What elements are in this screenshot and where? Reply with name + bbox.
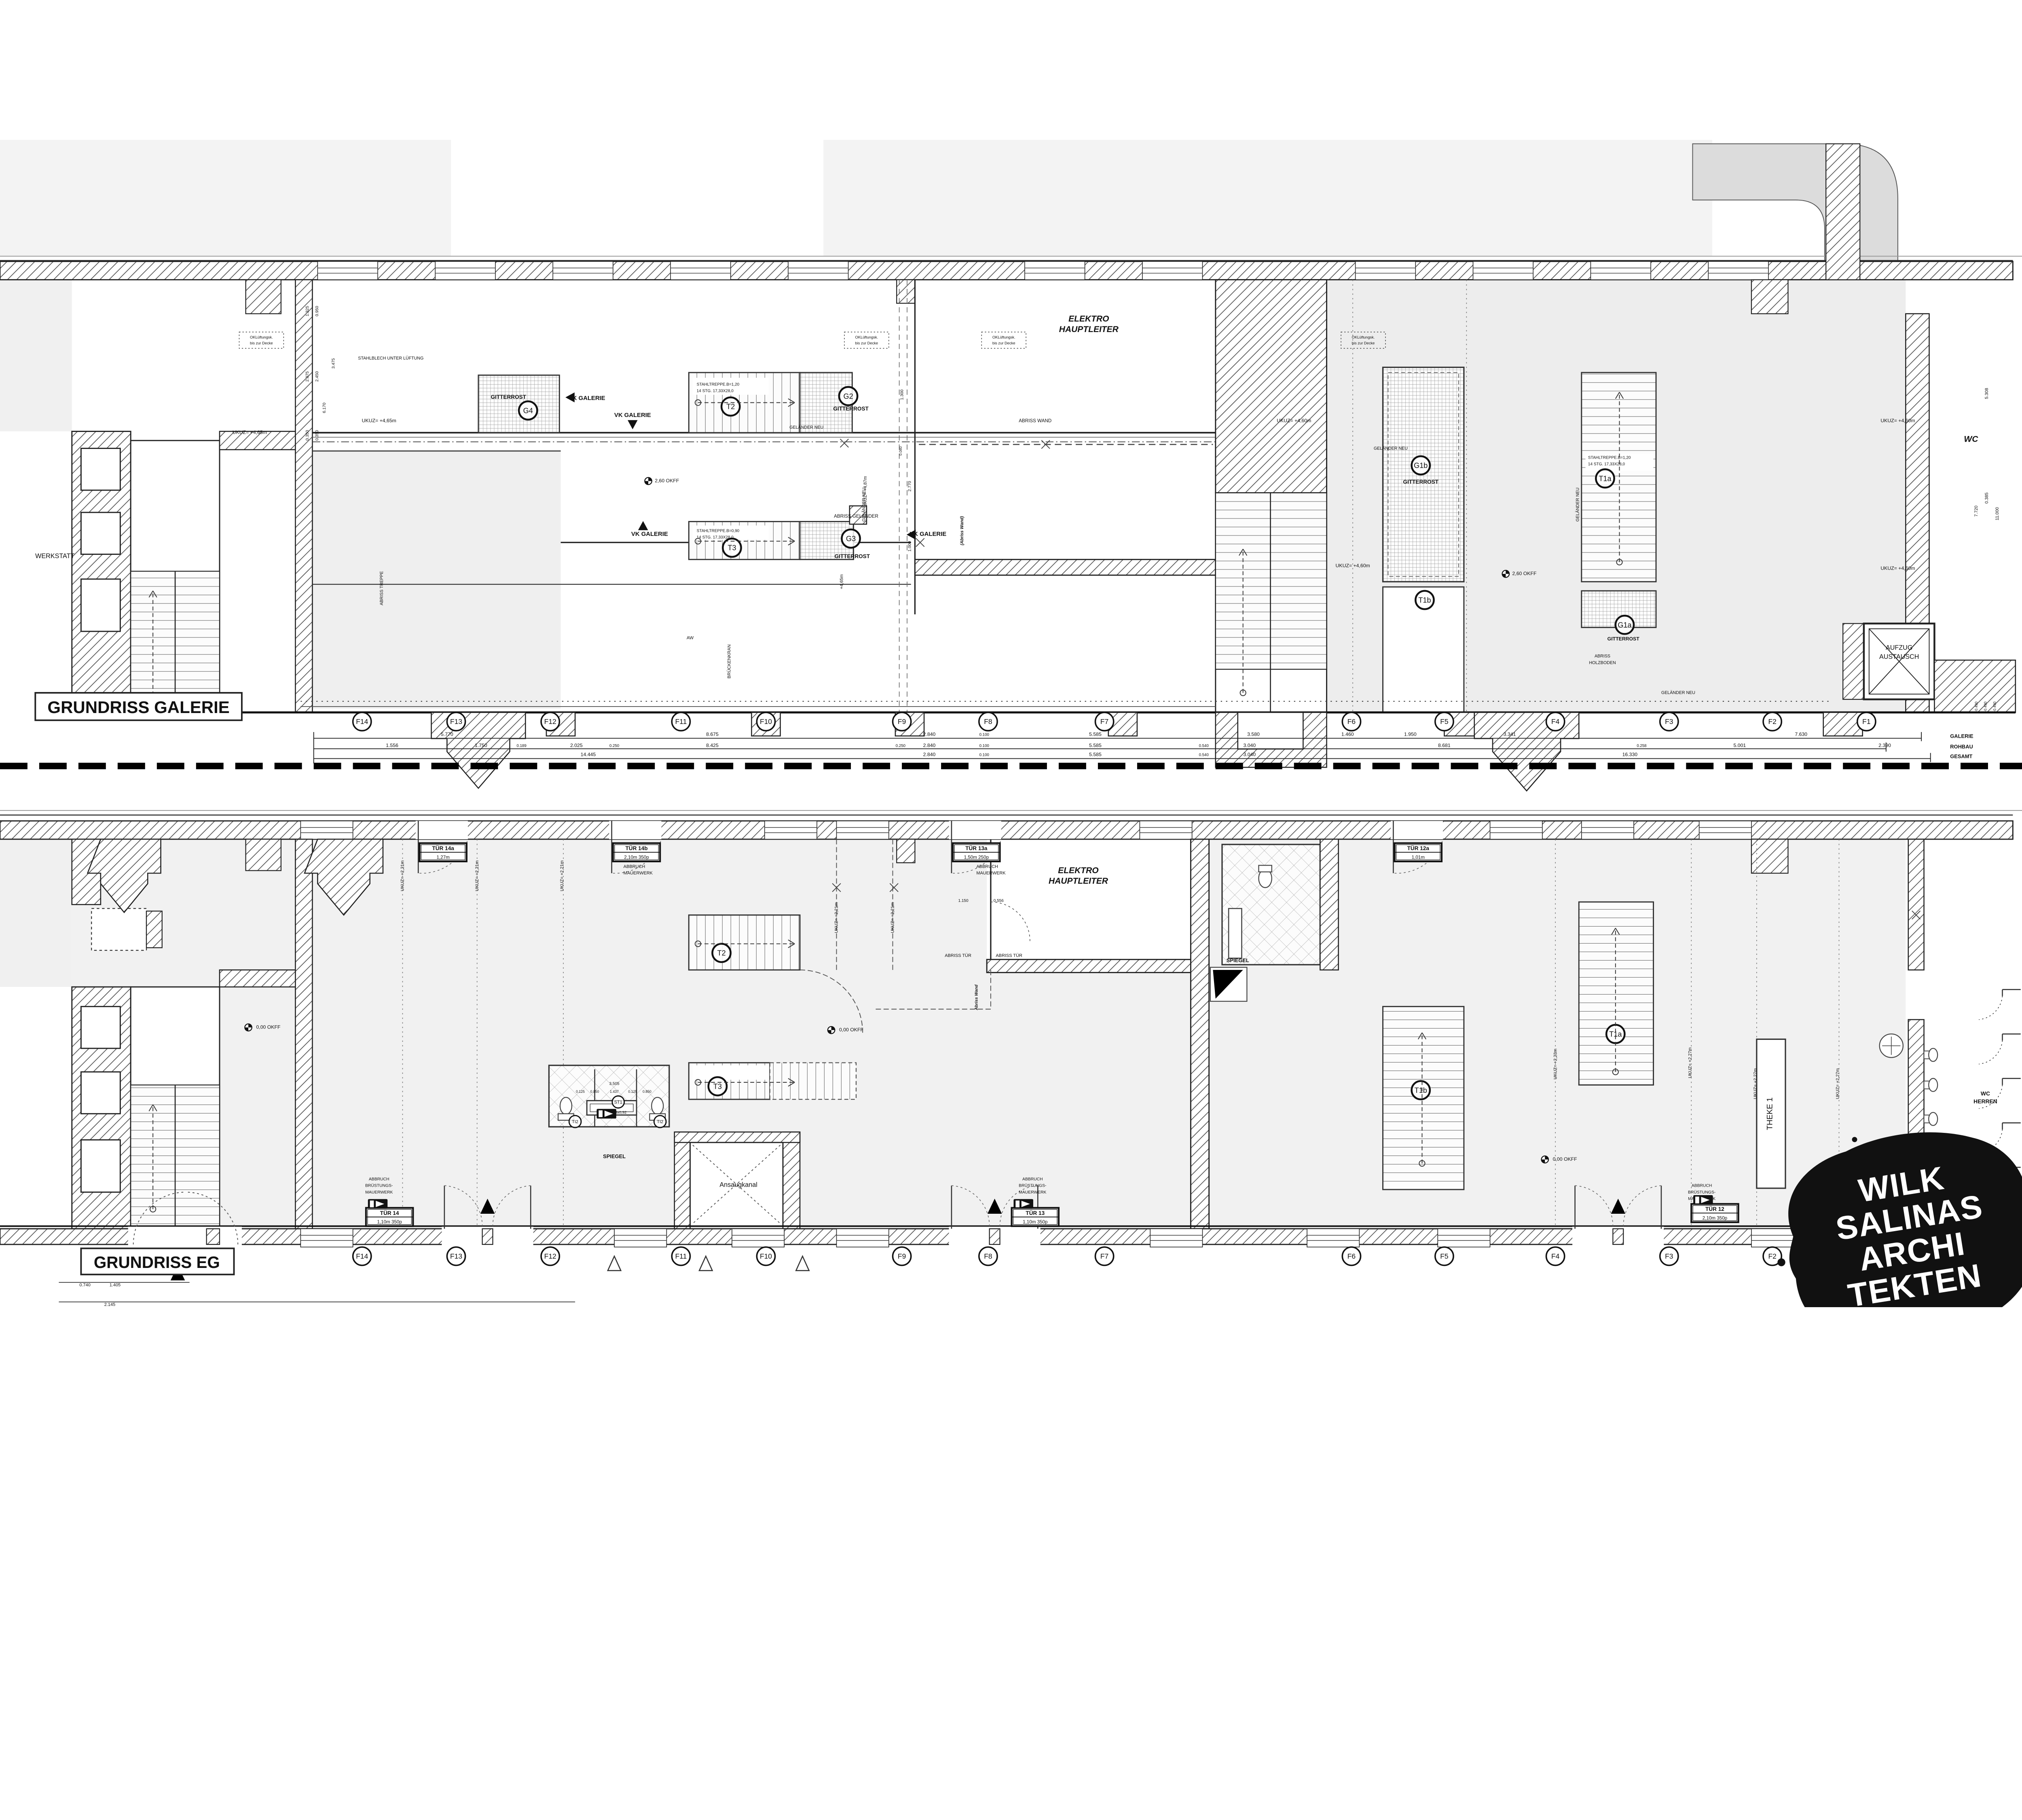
plan-label: MAUERWERK: [1019, 1190, 1046, 1195]
window-opening: [614, 1229, 666, 1247]
plan-label: GITTERROST: [491, 394, 527, 400]
plan-label: 1.000: [908, 541, 912, 552]
window-opening: [1356, 261, 1416, 279]
plan-label: 1.405: [110, 1282, 121, 1287]
plan-label: 0.540: [1199, 744, 1209, 748]
window-opening: [765, 821, 817, 839]
plan-label: HAUPTLEITER: [1049, 876, 1108, 886]
plan-label: STAHLTREPPE.B=1,20: [697, 382, 740, 387]
plan-label: 3.040: [1243, 743, 1256, 748]
level-marker: [828, 1026, 835, 1033]
plan-label: GELÄNDER NEU: [1374, 446, 1408, 451]
window-opening: [435, 261, 495, 279]
plan-label: STAHLTREPPE.B=0,90: [697, 529, 740, 533]
plan-label: GITTERROST: [1607, 636, 1640, 642]
plan-label: 14.445: [581, 752, 596, 758]
door-tag-spec: 2,10m 350p: [624, 855, 649, 860]
tag-ti2: TI2: [569, 1115, 581, 1128]
axis-label: F7: [1100, 1252, 1108, 1260]
note-box: [91, 908, 146, 950]
plan-label: 1.437: [610, 1090, 619, 1094]
door-tag-title: TÜR 12: [1705, 1206, 1724, 1212]
plan-label: 5.001: [1734, 743, 1746, 748]
plan-label: 5.770: [441, 732, 453, 737]
plan-label: BRÜSTUNGS-: [365, 1183, 393, 1188]
axis-marker-f13: F13: [447, 1247, 465, 1265]
adjacent-area: [823, 140, 1712, 256]
tag-t1a: T1a: [1606, 1025, 1624, 1043]
stairwell-left-eg: [131, 987, 220, 1229]
plan-label: UKUZ= +4,60m: [1336, 563, 1370, 569]
plan-label: UKUZ= +2,23m: [1553, 1049, 1558, 1079]
door-opening: [416, 821, 468, 839]
plan-label: UKUZ= +2,27m: [1688, 1048, 1692, 1078]
plan-label: GELÄNDER NEU: [789, 425, 823, 430]
plan-label: HOLZBODEN: [1589, 660, 1616, 665]
emergency-exit-icon: [368, 1199, 387, 1209]
plan-label: AUSTAUSCH: [1879, 653, 1919, 660]
axis-marker-f7: F7: [1095, 712, 1113, 730]
plan-label: bis zur Decke: [855, 341, 878, 345]
axis-marker-f8: F8: [979, 712, 997, 730]
window-opening: [1307, 1229, 1359, 1247]
plan-label: 0,00 OKFF: [839, 1027, 863, 1033]
door-opening: [949, 821, 1001, 839]
plan-label: 2.450: [315, 371, 319, 382]
plan-label: 0.385: [1984, 493, 1989, 504]
tag-g1b: G1b: [1412, 456, 1430, 474]
axis-label: F8: [984, 1252, 992, 1260]
axis-marker-f3: F3: [1660, 712, 1678, 730]
plan-label: STAHLBLECH UNTER LÜFTUNG: [358, 356, 423, 361]
ansaugkanal-shaft: [675, 1132, 800, 1229]
plan-label: 0.850: [643, 1090, 651, 1094]
axis-marker-f14: F14: [353, 712, 371, 730]
door-tag-spec: 1,27m: [437, 855, 450, 860]
tag-label: G1a: [1618, 621, 1632, 629]
plan-label: BRÜSTUNGS-: [1019, 1183, 1046, 1188]
window-opening: [553, 261, 613, 279]
window-opening: [1438, 1229, 1490, 1247]
tag-label: TI2: [657, 1120, 663, 1124]
plan-label: ROHBAU: [1950, 743, 1973, 749]
plan-label: 2,60 OKFF: [1512, 571, 1536, 576]
tag-t2: T2: [712, 944, 730, 962]
door-tag-title: TÜR 14: [380, 1210, 399, 1216]
plan-label: HAUPTLEITER: [1059, 325, 1119, 334]
plan-label: THEKE 1: [1766, 1097, 1775, 1130]
plan-label: 2.840: [923, 732, 936, 737]
axis-label: F11: [675, 717, 687, 726]
plan-label: GITTERROST: [835, 553, 870, 559]
axis-marker-f1: F1: [1857, 712, 1876, 730]
eg-plan: [0, 811, 2022, 1302]
level-marker: [645, 478, 651, 485]
plan-label: 0.100: [979, 753, 990, 758]
axis-marker-f6: F6: [1342, 712, 1360, 730]
stair-T1a: [1582, 372, 1656, 582]
window-opening: [300, 821, 353, 839]
plan-label: 0.350: [305, 430, 310, 440]
window-opening: [300, 1229, 353, 1247]
door-tag-spec: 1,50m 250p: [964, 855, 989, 860]
plan-label: UKUZ= +4,60m: [1277, 418, 1311, 423]
plan-label: 2.145: [104, 1302, 115, 1307]
plan-label: GELÄNDER NEU: [1575, 488, 1580, 522]
stairwell-left: [131, 440, 220, 712]
plan-label: 3.040: [1243, 752, 1256, 758]
axis-label: F10: [760, 717, 772, 726]
plan-label: 0.080: [899, 447, 903, 456]
plan-label: ABRISS TÜR: [996, 953, 1022, 958]
tag-g4: G4: [519, 401, 537, 419]
plan-label: 0.100: [979, 733, 990, 737]
plan-label: +0.490: [1992, 702, 1997, 713]
plan-label: 0.740: [79, 1282, 90, 1287]
plan-label: 1.325: [305, 306, 310, 316]
plan-label: 6.170: [322, 402, 327, 413]
plan-label: UKUZ= +2,21m: [475, 860, 480, 891]
plan-label: ABBRUCH: [369, 1177, 389, 1182]
plan-label: 8.675: [706, 732, 719, 737]
plan-label: BRÜSTUNGS-: [1688, 1190, 1715, 1195]
window-opening: [837, 1229, 889, 1247]
tag-label: TI2: [572, 1120, 578, 1124]
plan-label: 0.100: [979, 744, 990, 748]
window-opening: [670, 261, 731, 279]
emergency-exit-icon: [1693, 1195, 1713, 1205]
plan-label: 0.250: [609, 744, 620, 748]
wall: [1191, 839, 1209, 1229]
window-opening: [1140, 821, 1192, 839]
door-tag-title: TÜR 12a: [1407, 845, 1430, 851]
axis-marker-f4: F4: [1546, 1247, 1565, 1265]
plan-label: UKUZ= +2,21m: [560, 860, 565, 891]
wall: [295, 280, 312, 713]
window-opening: [732, 1229, 784, 1247]
door-tag-tür-12a: TÜR 12a1,01m: [1395, 843, 1442, 861]
plan-label: OKLüftungsk.: [855, 335, 878, 339]
plan-label: 1.300: [900, 389, 904, 400]
plan-label: 2.840: [923, 752, 936, 758]
plan-label: +0.490: [1984, 702, 1988, 713]
window-opening: [1708, 261, 1768, 279]
window-opening: [1591, 261, 1651, 279]
plan-label: MAUERWERK: [365, 1190, 393, 1195]
eg-title-box: GRUNDRISS EG: [81, 1249, 234, 1275]
plan-label: 3.580: [1247, 732, 1260, 737]
eg-left-front: [0, 839, 72, 987]
axis-label: F4: [1551, 1252, 1560, 1260]
plan-label: 0.125: [576, 1090, 585, 1094]
tag-label: ST1: [614, 1100, 622, 1105]
axis-label: F3: [1665, 717, 1673, 726]
plan-label: 11.000: [1995, 507, 2000, 521]
stair-T2-eg: [689, 915, 800, 970]
plan-label: UKUZ= +2,21m: [834, 902, 839, 933]
plan-label: Abriss Wand: [975, 984, 979, 1011]
elektro-room: [987, 839, 1209, 970]
axis-label: F3: [1665, 1252, 1673, 1260]
axis-label: F5: [1440, 717, 1448, 726]
tag-label: T1a: [1599, 474, 1612, 483]
door-tag-title: TÜR 14a: [432, 845, 455, 851]
plan-label: 1.556: [386, 743, 398, 748]
tag-label: T3: [713, 1082, 722, 1090]
axis-marker-f3: F3: [1660, 1247, 1678, 1265]
level-marker: [1502, 570, 1509, 577]
plan-label: MAUERWERK: [976, 871, 1006, 876]
plan-label: UKUZ= +4,87m: [863, 476, 868, 507]
wall-block: [1216, 280, 1327, 493]
axis-marker-f9: F9: [893, 1247, 911, 1265]
plan-label: 0.850: [590, 1090, 599, 1094]
plan-label: 8.425: [706, 743, 719, 748]
plan-label: GESAMT: [1950, 753, 1972, 760]
plan-label: ABBRUCH: [976, 864, 998, 869]
axis-label: F6: [1347, 1252, 1356, 1260]
plan-label: ABRISS GELÄNDER: [834, 514, 878, 519]
axis-label: F14: [356, 1252, 368, 1260]
plan-label: GITTERROST: [833, 406, 869, 412]
axis-label: F13: [450, 717, 462, 726]
plan-label: 16.330: [1622, 752, 1638, 758]
plan-label: OKLüftungsk.: [992, 335, 1015, 339]
plan-label: GELÄNDER NEU: [1661, 690, 1695, 695]
plan-label: UKUZ= +2,27m: [1836, 1068, 1840, 1099]
floorplan-sheet: WERKSTATTELEKTROHAUPTLEITERWCAUFZUGAUSTA…: [0, 0, 2022, 1307]
door-tag-tür-13: TÜR 131,10m 350p: [1012, 1208, 1059, 1226]
axis-label: F12: [544, 717, 556, 726]
axis-marker-f7: F7: [1095, 1247, 1113, 1265]
plan-label: 5.585: [1089, 732, 1102, 737]
axis-marker-f12: F12: [541, 712, 559, 730]
axis-label: F4: [1551, 717, 1560, 726]
tag-label: G2: [844, 392, 853, 400]
emergency-exit-icon: [596, 1109, 616, 1119]
plan-label: UKUZ= +4,65m: [233, 430, 267, 435]
window-opening: [1142, 261, 1203, 279]
plan-label: 7.720: [1974, 506, 1979, 516]
door-opening: [1391, 821, 1443, 839]
plan-label: WERKSTATT: [35, 552, 74, 560]
plan-label: 3.341: [1504, 732, 1516, 737]
window-opening: [1150, 1229, 1202, 1247]
plan-label: 1.950: [1404, 732, 1417, 737]
eg-left-room: [0, 987, 72, 1229]
axis-marker-f14: F14: [353, 1247, 371, 1265]
plan-label: UKUZ= +2,21m: [400, 860, 405, 891]
stairwell-right: [1216, 493, 1327, 712]
adjacent-area: [0, 140, 451, 256]
plan-label: 1.150: [958, 899, 969, 903]
axis-label: F9: [898, 1252, 906, 1260]
plan-label: UKUZ= +4,60m: [1880, 565, 1915, 571]
plan-label: 2,60 OKFF: [655, 478, 679, 484]
plan-label: WC: [1981, 1090, 1990, 1096]
tag-t1b: T1b: [1415, 591, 1434, 609]
plan-label: 0,00 OKFF: [1553, 1156, 1577, 1162]
plan-label: 0.250: [896, 744, 906, 748]
door-tag-tür-14: TÜR 141,10m 350p: [366, 1208, 413, 1226]
axis-marker-f11: F11: [672, 712, 690, 730]
tag-label: T2: [717, 949, 726, 957]
axis-marker-f9: F9: [893, 712, 911, 730]
door-tag-tür-12: TÜR 122,10m 350p: [1691, 1204, 1738, 1222]
plan-label: 5.585: [1089, 752, 1102, 758]
tag-label: G1b: [1414, 461, 1428, 470]
axis-marker-f11: F11: [672, 1247, 690, 1265]
tag-st1: ST1: [612, 1096, 624, 1108]
window-opening: [1699, 821, 1751, 839]
plan-label: WC: [1964, 434, 1978, 444]
plan-label: bis zur Decke: [1352, 341, 1375, 345]
plan-label: 2.075: [305, 371, 310, 382]
door-tag-title: TÜR 13: [1026, 1210, 1045, 1216]
door-tag-tür-13a: TÜR 13a1,50m 250p: [953, 843, 1000, 861]
plan-label: ABBRUCH: [1692, 1184, 1712, 1188]
axis-label: F10: [760, 1252, 772, 1260]
plan-label: 0.540: [1199, 753, 1209, 758]
door-opening: [609, 821, 661, 839]
galerie-title-box: GRUNDRISS GALERIE: [35, 693, 242, 720]
plan-label: ABRISS: [1595, 654, 1610, 659]
axis-label: F12: [544, 1252, 556, 1260]
door-tag-title: TÜR 14b: [626, 845, 648, 851]
tag-g1a: G1a: [1616, 616, 1634, 634]
door-tag-spec: 1,01m: [1412, 855, 1425, 860]
plan-label: ABRISS TÜR: [945, 953, 971, 958]
tag-g3: G3: [842, 529, 860, 548]
axis-label: F8: [984, 717, 992, 726]
plan-label: 2.840: [923, 743, 936, 748]
tag-label: T1b: [1415, 1086, 1427, 1094]
plan-label: 2.770: [908, 481, 912, 491]
tag-label: T1b: [1418, 596, 1431, 604]
axis-label: F13: [450, 1252, 462, 1260]
axis-marker-f13: F13: [447, 712, 465, 730]
door-tag-tür-14b: TÜR 14b2,10m 350p: [613, 843, 660, 861]
plan-label: 0.125: [628, 1090, 637, 1094]
grating-G4: [478, 375, 559, 433]
axis-label: F7: [1100, 717, 1108, 726]
left-outside: [0, 280, 72, 432]
plan-label: bis zur Decke: [992, 341, 1015, 345]
axis-marker-f8: F8: [979, 1247, 997, 1265]
plan-label: GITTERROST: [1403, 479, 1439, 485]
plan-label: bis zur Decke: [250, 341, 273, 345]
axis-label: F1: [1862, 717, 1870, 726]
door-tag-spec: 1,10m 350p: [1023, 1219, 1047, 1225]
axis-marker-f5: F5: [1435, 712, 1453, 730]
tag-label: T3: [728, 544, 736, 552]
tag-t3: T3: [709, 1077, 727, 1095]
tag-t1b: T1b: [1412, 1081, 1430, 1099]
plan-label: 0,00 OKFF: [256, 1024, 280, 1030]
plan-label: 2.025: [570, 743, 583, 748]
axis-marker-f2: F2: [1763, 712, 1781, 730]
plan-label: OKLüftungsk.: [250, 335, 273, 339]
plan-label: UKUZ= +2,27m: [1753, 1068, 1758, 1099]
plan-label: VK GALERIE: [614, 412, 651, 419]
level-marker: [245, 1024, 252, 1031]
plan-label: 0.350: [315, 430, 319, 440]
axis-label: F9: [898, 717, 906, 726]
axis-marker-f12: F12: [541, 1247, 559, 1265]
plan-label: +0.490: [1974, 702, 1978, 713]
tag-g2: G2: [839, 387, 857, 405]
window-opening: [1473, 261, 1533, 279]
plan-label: HERREN: [1973, 1098, 1997, 1105]
plan-label: UKUZ= +4,60m: [1880, 418, 1915, 423]
plan-label: UKUZ= +4,65m: [362, 418, 396, 423]
plan-label: SPIEGEL: [1227, 957, 1249, 963]
tag-t2: T2: [721, 398, 740, 416]
axis-marker-f10: F10: [757, 712, 775, 730]
plan-label: 0.950: [315, 306, 319, 316]
window-opening: [1025, 261, 1085, 279]
axis-label: F2: [1768, 1252, 1776, 1260]
window-opening: [1490, 821, 1542, 839]
plan-label: AW: [687, 635, 694, 640]
plan-label: 5.308: [1984, 388, 1989, 399]
plan-label: 1.460: [1341, 732, 1354, 737]
plan-label: STAHLTREPPE.B=1,20: [1588, 455, 1631, 460]
window-opening: [788, 261, 848, 279]
plan-label: 1.750: [475, 743, 487, 748]
emergency-exit-icon: [1013, 1199, 1033, 1209]
axis-label: F5: [1440, 1252, 1448, 1260]
door-tag-tür-14a: TÜR 14a1,27m: [419, 843, 466, 861]
tag-label: G3: [846, 535, 856, 543]
plan-label: 2.390: [1878, 743, 1891, 748]
plan-label: 3.475: [331, 358, 336, 368]
plan-label: 0.189: [516, 744, 526, 748]
plan-label: ABBRUCH: [624, 864, 645, 869]
plan-label: OKLüftungsk.: [1352, 335, 1375, 339]
level-marker: [1542, 1156, 1548, 1163]
plan-label: 0.556: [994, 899, 1004, 903]
tag-t1a: T1a: [1596, 469, 1614, 487]
axis-marker-f6: F6: [1342, 1247, 1360, 1265]
plan-label: ABRISS TREPPE: [379, 571, 384, 605]
werkstatt-room: [0, 432, 72, 713]
plan-label: ABRISS WAND: [1019, 418, 1051, 423]
stair-T3: [689, 522, 800, 560]
wc-room: [1931, 280, 2022, 713]
tag-label: T2: [726, 403, 735, 411]
axis-marker-f10: F10: [757, 1247, 775, 1265]
window-opening: [1582, 821, 1634, 839]
plan-label: ABBRUCH: [1022, 1177, 1043, 1182]
plan-label: AUFZUG: [1886, 644, 1912, 651]
plan-label: 14 STG. 17,33X28,0: [697, 389, 734, 394]
plan-label: +4,65m: [840, 574, 844, 589]
tag-ti2: TI2: [654, 1115, 666, 1128]
axis-marker-f5: F5: [1435, 1247, 1453, 1265]
plan-label: 3.505: [609, 1082, 620, 1086]
axis-label: F11: [675, 1252, 687, 1260]
plan-label: MAUERWERK: [624, 871, 653, 876]
plan-label: 5.585: [1089, 743, 1102, 748]
door-tag-title: TÜR 13a: [965, 845, 988, 851]
plan-label: Ansaugkanal: [719, 1181, 757, 1189]
axis-marker-f4: F4: [1546, 712, 1565, 730]
plan-label: 7.630: [1795, 732, 1807, 737]
plan-label: VK GALERIE: [631, 531, 668, 538]
window-opening: [317, 261, 378, 279]
plan-label: BRÜCKENKRAN: [727, 644, 732, 678]
